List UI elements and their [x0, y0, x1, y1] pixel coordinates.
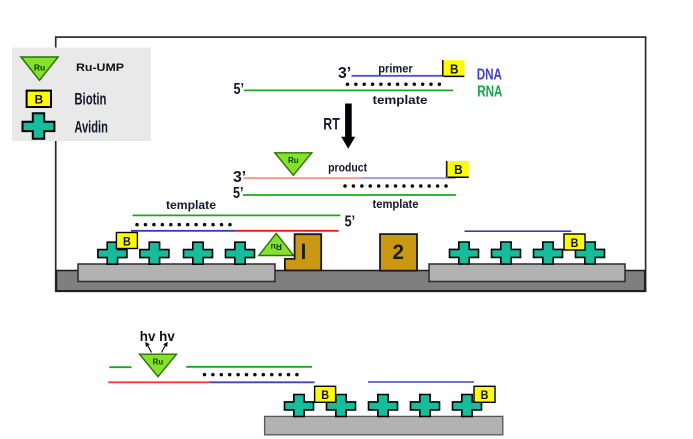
svg-text:B: B [34, 92, 43, 106]
svg-text:5’: 5’ [234, 81, 245, 98]
svg-text:hv hv: hv hv [140, 328, 175, 344]
svg-text:DNA: DNA [477, 66, 502, 83]
svg-text:2: 2 [393, 241, 405, 264]
svg-text:5’: 5’ [233, 185, 244, 202]
svg-text:5’: 5’ [345, 213, 356, 230]
svg-text:template: template [373, 93, 428, 107]
svg-text:RNA: RNA [477, 83, 502, 100]
svg-text:B: B [450, 61, 459, 76]
svg-text:template: template [373, 197, 419, 211]
svg-text:product: product [328, 163, 367, 175]
svg-text:Biotin: Biotin [74, 91, 106, 109]
svg-text:template: template [166, 198, 216, 212]
svg-text:B: B [454, 162, 463, 177]
svg-text:Avidin: Avidin [74, 118, 108, 136]
svg-text:Ru: Ru [34, 63, 45, 73]
svg-text:Ru-UMP: Ru-UMP [76, 62, 124, 74]
svg-text:primer: primer [378, 64, 413, 76]
svg-text:3’: 3’ [338, 65, 351, 82]
svg-text:RT: RT [323, 115, 340, 134]
svg-text:Ru: Ru [271, 242, 282, 252]
